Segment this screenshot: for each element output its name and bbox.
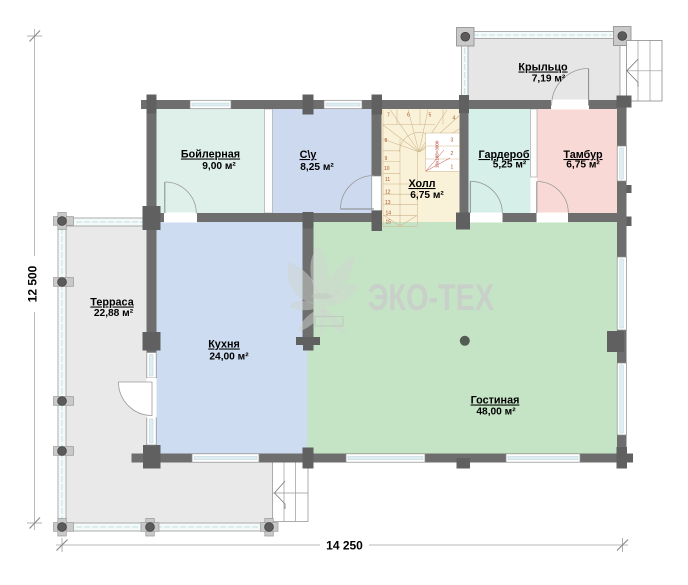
svg-text:11: 11: [385, 177, 390, 183]
svg-text:Гостиная: Гостиная: [471, 395, 520, 407]
svg-text:6,75 м²: 6,75 м²: [410, 190, 444, 201]
svg-text:7: 7: [387, 113, 390, 119]
svg-text:12 500: 12 500: [26, 265, 40, 302]
svg-text:24,00 м²: 24,00 м²: [209, 352, 249, 363]
svg-text:Бойлерная: Бойлерная: [181, 149, 240, 161]
svg-text:14 250: 14 250: [326, 539, 363, 553]
svg-text:5: 5: [429, 113, 432, 119]
svg-text:8,25 м²: 8,25 м²: [300, 162, 334, 173]
svg-text:14: 14: [386, 211, 392, 217]
svg-text:Кухня: Кухня: [208, 339, 240, 351]
svg-text:48,00 м²: 48,00 м²: [476, 407, 516, 418]
svg-text:4: 4: [453, 116, 456, 122]
svg-text:13: 13: [385, 200, 391, 206]
svg-text:С\у: С\у: [300, 149, 317, 161]
svg-text:9: 9: [385, 156, 388, 162]
svg-text:6: 6: [407, 113, 410, 119]
svg-text:22,88 м²: 22,88 м²: [94, 308, 134, 319]
svg-text:7,19 м²: 7,19 м²: [532, 74, 566, 85]
svg-text:2: 2: [451, 151, 454, 157]
svg-text:Терраса: Терраса: [90, 297, 134, 309]
svg-text:1: 1: [451, 165, 454, 171]
svg-text:Холл: Холл: [408, 178, 435, 190]
svg-text:16х188=3000: 16х188=3000: [435, 140, 440, 168]
svg-text:Крыльцо: Крыльцо: [518, 62, 568, 74]
svg-text:15: 15: [386, 220, 392, 226]
svg-text:3: 3: [451, 138, 454, 144]
svg-text:5,25 м²: 5,25 м²: [493, 160, 527, 171]
svg-text:6,75 м²: 6,75 м²: [566, 160, 600, 171]
svg-text:9,00 м²: 9,00 м²: [202, 161, 236, 172]
svg-text:ЭКО-ТЕХ: ЭКО-ТЕХ: [368, 278, 494, 319]
svg-text:8: 8: [385, 138, 388, 144]
svg-text:10: 10: [384, 166, 390, 172]
svg-text:12: 12: [385, 190, 391, 196]
